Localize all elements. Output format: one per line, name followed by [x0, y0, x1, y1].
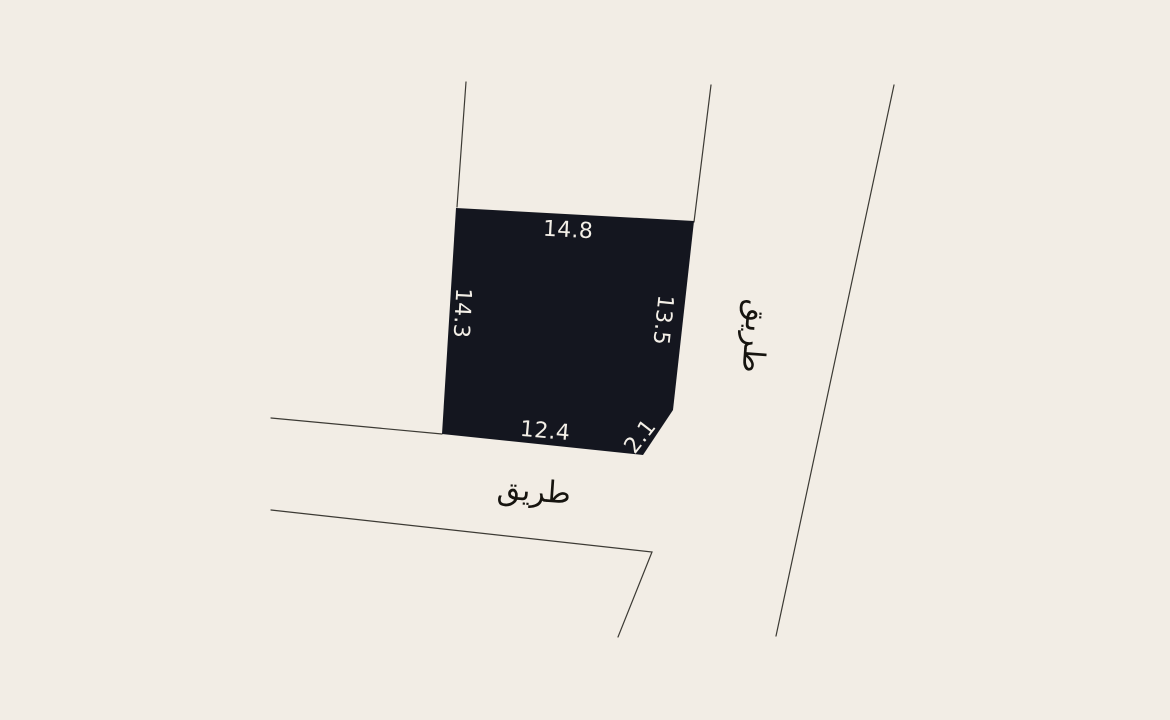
- dimension-label-top: 14.8: [542, 219, 593, 244]
- right-road-label: طريق: [736, 298, 771, 374]
- dimension-label-right: 13.5: [648, 294, 675, 346]
- dimension-label-left: 14.3: [449, 287, 474, 338]
- right-road-far-edge: [776, 85, 894, 636]
- plot-map-canvas: 14.8 14.3 13.5 12.4 2.1 طريق طريق: [0, 0, 1170, 720]
- boundary-line-upper-right: [694, 85, 711, 222]
- bottom-road-far-edge: [271, 510, 652, 637]
- map-geometry: [0, 0, 1170, 720]
- dimension-label-bottom: 12.4: [519, 419, 571, 445]
- bottom-road-near-edge: [271, 418, 442, 434]
- bottom-road-label: طريق: [496, 474, 572, 509]
- boundary-line-upper-left: [457, 82, 466, 207]
